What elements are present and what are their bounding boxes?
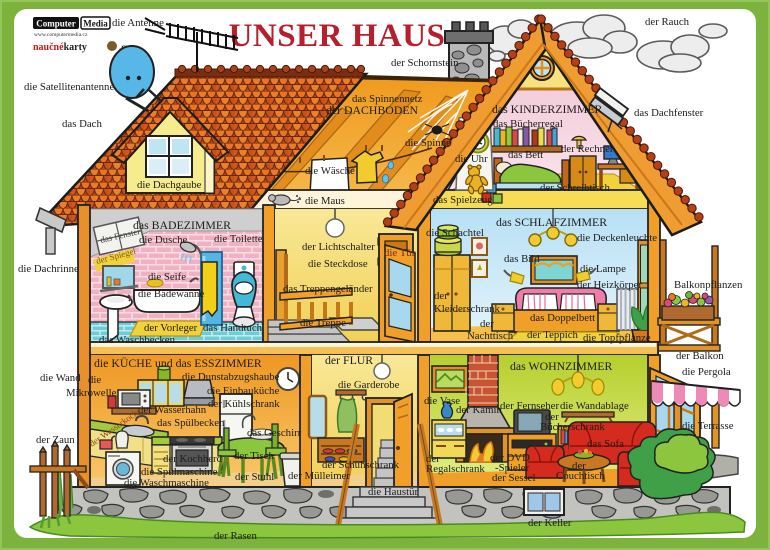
svg-text:der Kühlschrank: der Kühlschrank [208,398,280,410]
svg-text:die Wandablage: die Wandablage [560,400,629,412]
svg-text:der Balkon: der Balkon [676,350,724,362]
svg-text:Nachttisch: Nachttisch [467,330,514,342]
svg-text:Bücherschrank: Bücherschrank [540,421,605,433]
svg-text:Regalschrank: Regalschrank [426,463,485,475]
svg-text:die Garderobe: die Garderobe [338,379,400,391]
svg-text:das Dach: das Dach [62,118,102,130]
svg-text:der Schreibtisch: der Schreibtisch [540,182,610,194]
svg-text:die Schachtel: die Schachtel [426,227,484,239]
svg-text:das KINDERZIMMER: das KINDERZIMMER [492,102,603,116]
svg-text:die Antenne: die Antenne [112,17,164,29]
svg-text:der Zaun: der Zaun [36,434,75,446]
svg-text:die Vase: die Vase [424,395,460,407]
svg-text:der Rasen: der Rasen [214,530,257,542]
svg-text:der Kamin: der Kamin [456,404,502,416]
svg-text:die KÜCHE und das ESSZIMMER: die KÜCHE und das ESSZIMMER [94,356,262,370]
svg-text:die Dachrinne: die Dachrinne [18,263,79,275]
svg-text:der Rechner: der Rechner [561,143,614,155]
svg-text:das Bett: das Bett [508,149,543,161]
svg-text:der Stuhl: der Stuhl [235,471,274,483]
svg-text:die Waschmaschine: die Waschmaschine [124,477,209,489]
svg-text:der Heizkörper: der Heizkörper [577,279,642,291]
svg-text:die Terrasse: die Terrasse [682,420,734,432]
svg-text:der Schornstein: der Schornstein [391,57,459,69]
svg-text:die Toilette: die Toilette [214,233,263,245]
svg-text:der Wasserhahn: der Wasserhahn [138,404,207,416]
svg-text:das Bild: das Bild [504,253,540,265]
svg-text:die Topfpflanze: die Topfpflanze [583,332,651,344]
svg-text:Computer: Computer [36,19,76,29]
svg-text:der Mülleimer: der Mülleimer [288,470,350,482]
svg-text:Media: Media [83,19,108,29]
svg-text:die Einbauküche: die Einbauküche [207,385,279,397]
svg-text:das Waschbecken: das Waschbecken [99,334,176,346]
svg-text:der Vorleger: der Vorleger [144,322,198,334]
svg-text:die Seife: die Seife [148,271,186,283]
svg-text:die Treppe: die Treppe [300,317,346,329]
svg-text:die Wand: die Wand [40,372,81,384]
svg-text:das Doppelbett: das Doppelbett [530,312,595,324]
svg-text:das Spülbecken: das Spülbecken [157,417,225,429]
svg-text:die Dachgaube: die Dachgaube [137,179,202,191]
svg-text:naučnékarty: naučnékarty [33,42,87,53]
svg-text:der: der [434,290,448,302]
svg-text:UNSER HAUS: UNSER HAUS [229,18,446,54]
svg-text:das WOHNZIMMER: das WOHNZIMMER [510,359,612,373]
svg-text:der Teppich: der Teppich [527,329,579,341]
svg-text:die Dusche: die Dusche [139,234,187,246]
svg-text:der Kochherd: der Kochherd [163,453,223,465]
svg-text:der Schuhschrank: der Schuhschrank [322,459,400,471]
svg-text:Couchtisch: Couchtisch [556,470,605,482]
svg-text:www.computermedia.cz: www.computermedia.cz [34,32,88,38]
svg-text:das SCHLAFZIMMER: das SCHLAFZIMMER [496,215,607,229]
svg-text:Mikrowelle: Mikrowelle [66,387,117,399]
svg-text:die Uhr: die Uhr [455,153,488,165]
svg-text:das Geschirr: das Geschirr [247,427,302,439]
svg-text:das Spielzeug: das Spielzeug [433,194,493,206]
svg-text:die Deckenleuchte: die Deckenleuchte [577,232,657,244]
svg-text:das Treppengeländer: das Treppengeländer [283,283,373,295]
svg-text:der: der [480,318,494,330]
svg-text:die Badewanne: die Badewanne [138,288,204,300]
svg-text:die Steckdose: die Steckdose [308,258,368,270]
svg-text:die Dunstabzugshaube: die Dunstabzugshaube [182,371,280,383]
svg-text:die Pergola: die Pergola [682,366,731,378]
svg-text:der Tisch: der Tisch [234,450,274,462]
svg-text:die: die [88,374,101,386]
svg-text:die Lampe: die Lampe [580,263,626,275]
svg-text:der Rauch: der Rauch [645,16,690,28]
svg-text:das Dachfenster: das Dachfenster [634,107,704,119]
svg-text:der Sessel: der Sessel [492,472,535,484]
svg-text:Balkonpflanzen: Balkonpflanzen [674,279,743,291]
svg-text:das Handtuch: das Handtuch [203,322,263,334]
svg-text:die Wäsche: die Wäsche [305,165,355,177]
svg-text:das Sofa: das Sofa [587,438,624,450]
svg-text:die Satellitenantenne: die Satellitenantenne [24,81,114,93]
svg-text:Kleiderschrank: Kleiderschrank [434,303,501,315]
svg-text:die Maus: die Maus [305,195,345,207]
svg-text:der DACHBODEN: der DACHBODEN [326,103,419,117]
svg-text:die Tür: die Tür [384,247,416,259]
svg-text:der Keller: der Keller [528,517,572,529]
svg-text:der Lichtschalter: der Lichtschalter [302,241,375,253]
svg-text:die Haustür: die Haustür [368,486,418,498]
svg-text:das BADEZIMMER: das BADEZIMMER [133,218,231,232]
svg-text:der FLUR: der FLUR [325,353,373,367]
svg-text:das Bücherregal: das Bücherregal [493,118,563,130]
svg-text:die Spinne: die Spinne [405,137,451,149]
